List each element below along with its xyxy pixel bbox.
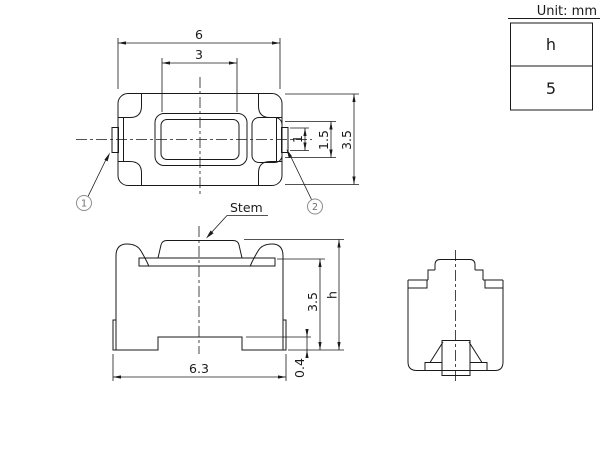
dim-front-lead-standoff: 0.4 xyxy=(246,329,344,378)
cover-ear-right xyxy=(250,244,283,268)
callout-terminal-2: 2 xyxy=(287,149,323,214)
dim-label-lead-standoff: 0.4 xyxy=(292,358,307,378)
corner-notch-br xyxy=(259,162,282,186)
stem-label: Stem xyxy=(230,200,263,215)
right-contact-block xyxy=(252,118,282,163)
corner-notch-bl xyxy=(119,162,142,186)
cover-ear-left xyxy=(116,244,149,268)
front-stem xyxy=(158,241,242,259)
dim-label-contact-width: 1.5 xyxy=(316,130,331,150)
top-plate xyxy=(139,258,275,266)
side-view xyxy=(408,250,503,384)
side-terminal-bar-left xyxy=(425,363,442,371)
front-foot-inner-edges xyxy=(116,320,283,350)
drawing-canvas: 6 3 1 1.5 3.5 xyxy=(0,0,600,450)
side-terminal-bends xyxy=(430,342,482,363)
spec-param-cell: h xyxy=(546,35,556,54)
callout-label-2: 2 xyxy=(312,202,318,213)
dim-label-body-depth: 3.5 xyxy=(339,130,354,150)
dim-label-body-height: 3.5 xyxy=(305,292,320,312)
unit-note: Unit: mm xyxy=(537,4,597,19)
callout-label-1: 1 xyxy=(81,199,87,210)
dim-top-stem-width: 3 xyxy=(162,47,237,112)
top-view: 6 3 1 1.5 3.5 xyxy=(76,27,359,214)
front-outline xyxy=(113,268,286,350)
corner-notch-tr xyxy=(259,94,282,118)
side-terminal-bar-right xyxy=(470,363,487,371)
side-stem xyxy=(435,260,475,271)
dim-label-stem-width: 3 xyxy=(195,47,203,62)
stem-callout: Stem xyxy=(206,200,268,239)
front-view-body xyxy=(113,226,286,354)
dim-label-lead-width: 1 xyxy=(290,135,305,143)
unit-and-spec: Unit: mm h 5 xyxy=(508,4,600,110)
callout-terminal-1: 1 xyxy=(77,153,111,211)
dim-label-body-width: 6 xyxy=(195,27,203,42)
dim-label-front-width: 6.3 xyxy=(189,361,209,376)
dim-front-body-width: 6.3 xyxy=(113,354,286,381)
dim-front-body-height: 3.5 xyxy=(277,259,325,350)
switch-drawing-svg: 6 3 1 1.5 3.5 xyxy=(0,0,600,450)
corner-notch-tl xyxy=(119,94,142,118)
spec-value-cell: 5 xyxy=(546,79,556,98)
dim-front-total-height: h xyxy=(244,240,344,351)
dim-label-total-height: h xyxy=(325,291,340,299)
front-view: Stem 6.3 0.4 3.5 xyxy=(113,200,344,381)
